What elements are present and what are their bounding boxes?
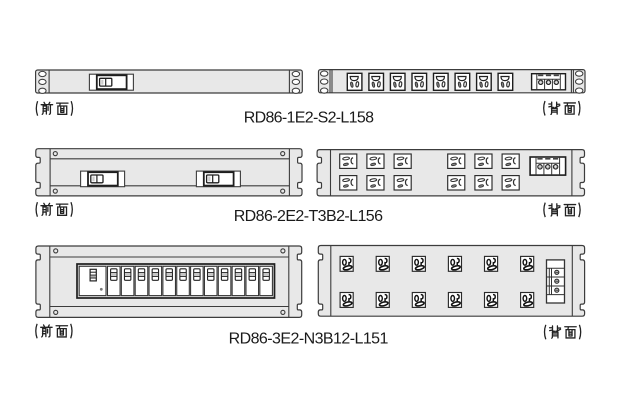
svg-text:RD86-3E2-N3B12-L151: RD86-3E2-N3B12-L151	[229, 330, 389, 347]
svg-text:RD86-2E2-T3B2-L156: RD86-2E2-T3B2-L156	[234, 208, 383, 225]
svg-text:RD86-1E2-S2-L158: RD86-1E2-S2-L158	[244, 109, 374, 126]
